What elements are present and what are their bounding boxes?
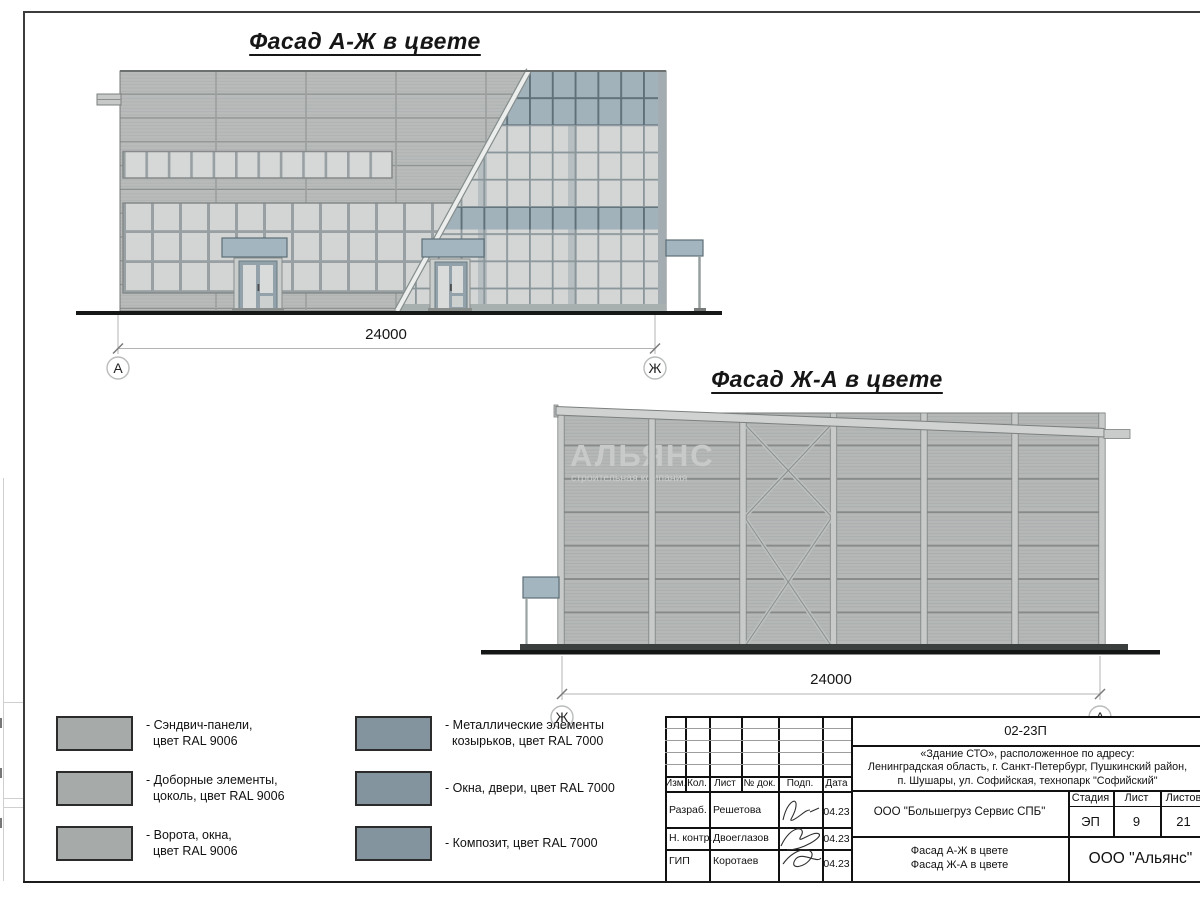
facade1-title: Фасад А-Ж в цвете <box>165 28 565 55</box>
facade1-door-1 <box>232 258 284 311</box>
facade2-drawing: АЛЬЯНС строительная компания <box>460 390 1180 735</box>
tb-project-address: «Здание СТО», расположенное по адресу: Л… <box>855 748 1200 789</box>
facade1-upper-window-band <box>123 152 392 179</box>
tb-client: ООО "Большегруз Сервис СПБ" <box>853 806 1066 818</box>
margin-mark <box>0 718 2 728</box>
frame-top-line <box>23 11 1200 13</box>
tb-stage-label: Стадия <box>1068 792 1113 804</box>
legend-swatch-ral7000 <box>355 826 432 861</box>
tb-role-2: Н. контр. <box>669 832 713 844</box>
tb-sheet-label: Лист <box>1113 792 1160 804</box>
facade1-dim-label: 24000 <box>365 326 407 343</box>
tb-doc-number: 02-23П <box>851 723 1200 738</box>
tb-role-3: ГИП <box>669 855 713 867</box>
tb-sheet-value: 9 <box>1113 814 1160 829</box>
facade2-ground-line <box>481 650 1160 655</box>
facade2-plinth <box>520 644 1128 651</box>
legend-item: - Сэндвич-панели,цвет RAL 9006 <box>56 716 252 751</box>
facade1-canopy-2 <box>422 239 484 257</box>
drawing-sheet: Фасад А-Ж в цвете Фасад Ж-А в цвете <box>0 0 1200 900</box>
facade1-ground-line <box>76 311 722 315</box>
tb-name-2: Двоеглазов <box>713 832 777 844</box>
facade1-axis-right-label: Ж <box>649 360 662 376</box>
margin-divider <box>3 807 23 808</box>
legend-swatch-ral9006 <box>56 771 133 806</box>
tb-date-2: 04.23 <box>822 833 851 845</box>
legend-label: - Ворота, окна,цвет RAL 9006 <box>146 828 238 859</box>
signature-scribble <box>773 820 825 878</box>
facade1-drawing: 24000 А Ж <box>60 60 760 390</box>
margin-mark <box>0 818 2 828</box>
tb-name-3: Коротаев <box>713 855 777 867</box>
margin-mark <box>0 768 2 778</box>
legend-swatch-ral7000 <box>355 716 432 751</box>
legend-item: - Ворота, окна,цвет RAL 9006 <box>56 826 238 861</box>
tb-col-kol: Кол. <box>685 778 709 789</box>
facade2-left-canopy <box>523 577 559 598</box>
facade1-right-canopy <box>666 240 703 256</box>
tb-col-data: Дата <box>822 778 851 789</box>
legend-label: - Окна, двери, цвет RAL 7000 <box>445 781 615 797</box>
tb-role-1: Разраб. <box>669 804 709 816</box>
frame-left-line <box>23 11 25 883</box>
legend-item: - Окна, двери, цвет RAL 7000 <box>355 771 615 806</box>
legend-label: - Сэндвич-панели,цвет RAL 9006 <box>146 718 252 749</box>
tb-name-1: Решетова <box>713 804 777 816</box>
tb-sheets-label: Листов <box>1160 792 1200 804</box>
legend-swatch-ral7000 <box>355 771 432 806</box>
legend-item: - Металлические элементыкозырьков, цвет … <box>355 716 604 751</box>
tb-col-izm: Изм. <box>665 778 685 789</box>
tb-date-1: 04.23 <box>822 806 851 818</box>
facade1-canopy-1 <box>222 238 287 257</box>
facade2-fascia-end <box>1104 430 1130 439</box>
tb-col-doc: № док. <box>741 778 778 789</box>
margin-divider <box>3 798 23 799</box>
tb-stage-value: ЭП <box>1068 814 1113 829</box>
facade2-dim-label: 24000 <box>810 671 852 688</box>
svg-text:строительная компания: строительная компания <box>571 472 687 484</box>
legend-swatch-ral9006 <box>56 826 133 861</box>
svg-text:АЛЬЯНС: АЛЬЯНС <box>570 438 715 473</box>
margin-strip-line <box>3 478 4 881</box>
tb-sheets-value: 21 <box>1160 814 1200 829</box>
legend-label: - Металлические элементыкозырьков, цвет … <box>445 718 604 749</box>
facade1-lower-window-band <box>123 203 460 293</box>
tb-date-3: 04.23 <box>822 858 851 870</box>
title-block: Изм. Кол. Лист № док. Подп. Дата Разраб.… <box>665 716 1200 881</box>
legend-label: - Композит, цвет RAL 7000 <box>445 836 598 852</box>
legend-label: - Доборные элементы,цоколь, цвет RAL 900… <box>146 773 285 804</box>
legend-item: - Композит, цвет RAL 7000 <box>355 826 598 861</box>
tb-col-list: Лист <box>709 778 741 789</box>
legend-item: - Доборные элементы,цоколь, цвет RAL 900… <box>56 771 285 806</box>
legend-swatch-ral9006 <box>56 716 133 751</box>
facade1-door-2 <box>428 259 472 311</box>
tb-col-podp: Подп. <box>778 778 822 789</box>
facade1-axis-left-label: А <box>113 360 123 376</box>
tb-sheet-title: Фасад А-Ж в цвете Фасад Ж-А в цвете <box>851 844 1068 872</box>
margin-divider <box>3 702 23 703</box>
tb-company: ООО "Альянс" <box>1068 850 1200 868</box>
frame-bottom-line <box>23 881 1200 883</box>
